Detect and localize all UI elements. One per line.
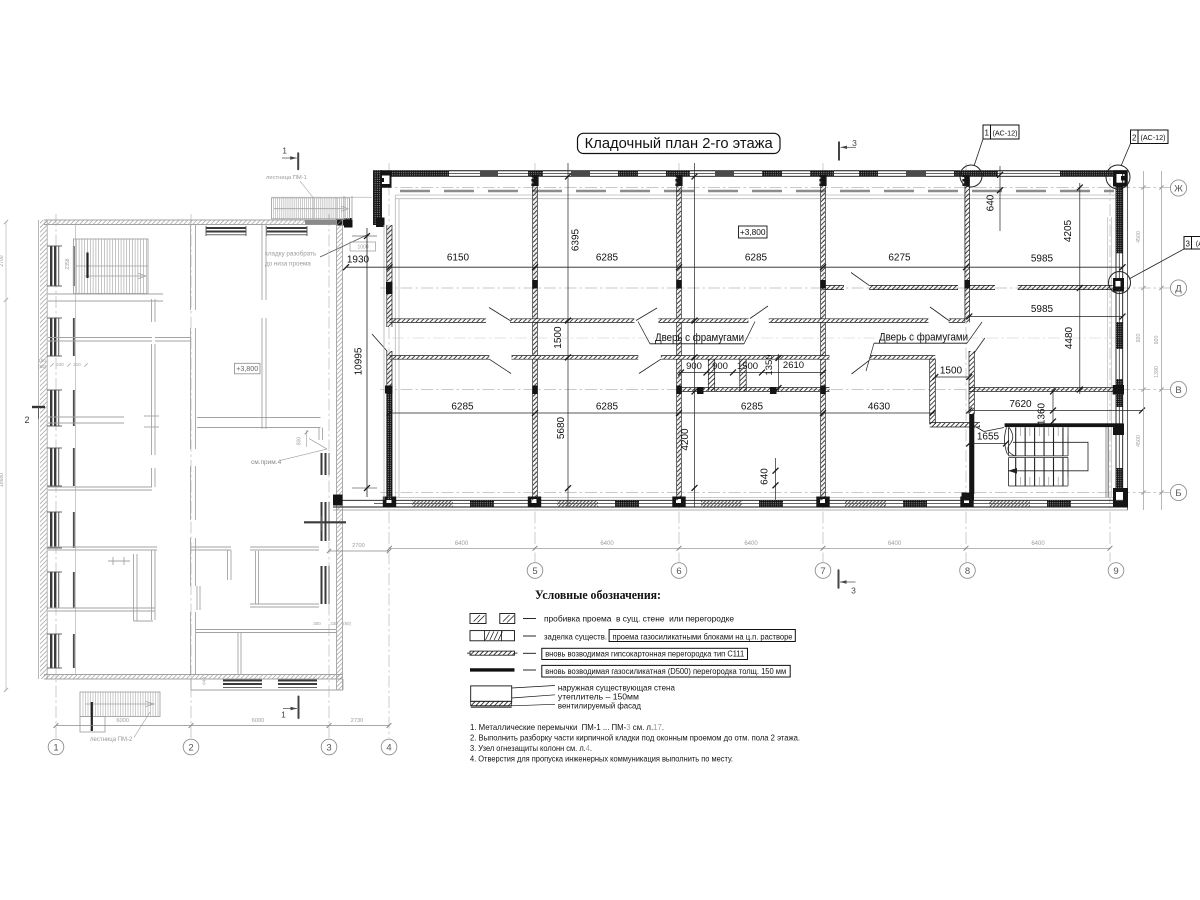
svg-text:6150: 6150 <box>447 253 470 264</box>
svg-text:вентилируемый фасад: вентилируемый фасад <box>558 701 641 711</box>
svg-text:6400: 6400 <box>744 541 758 547</box>
svg-text:6275: 6275 <box>888 253 911 264</box>
svg-text:4500: 4500 <box>1136 231 1142 243</box>
svg-text:1500: 1500 <box>553 326 564 349</box>
svg-text:6400: 6400 <box>1031 541 1045 547</box>
svg-text:(АС-12): (АС-12) <box>1140 133 1165 142</box>
svg-text:Условные обозначения:: Условные обозначения: <box>535 588 661 602</box>
svg-text:1500: 1500 <box>940 366 963 377</box>
svg-text:1500: 1500 <box>737 361 758 372</box>
svg-text:2730: 2730 <box>351 718 364 724</box>
svg-text:900: 900 <box>712 361 728 372</box>
svg-text:300: 300 <box>313 621 321 626</box>
svg-text:1: 1 <box>984 129 989 138</box>
svg-text:1360: 1360 <box>1037 402 1048 425</box>
svg-text:6: 6 <box>676 566 681 577</box>
svg-text:6400: 6400 <box>888 541 902 547</box>
svg-text:лестница ПМ-2: лестница ПМ-2 <box>90 737 133 743</box>
svg-text:(АС-12): (АС-12) <box>992 128 1017 137</box>
svg-text:лестница ПМ-1: лестница ПМ-1 <box>266 175 307 181</box>
svg-text:вновь возводимая газосиликатна: вновь возводимая газосиликатная (D500) п… <box>545 666 786 676</box>
svg-text:6285: 6285 <box>596 253 619 264</box>
svg-text:4480: 4480 <box>1064 326 1075 349</box>
svg-text:5985: 5985 <box>1031 304 1054 315</box>
svg-text:1390: 1390 <box>1154 366 1160 378</box>
svg-text:900: 900 <box>686 361 702 372</box>
svg-text:2358: 2358 <box>65 258 71 269</box>
svg-text:7: 7 <box>820 566 825 577</box>
svg-text:1. Металлические перемычки ПМ: 1. Металлические перемычки ПМ-1 ... ПМ-3… <box>470 722 664 732</box>
svg-text:330: 330 <box>330 621 338 626</box>
svg-text:4: 4 <box>386 743 391 754</box>
svg-text:3: 3 <box>851 586 856 596</box>
svg-text:3: 3 <box>852 138 857 148</box>
svg-text:4200: 4200 <box>680 428 691 451</box>
svg-text:Д: Д <box>1175 284 1182 295</box>
svg-text:920: 920 <box>1136 334 1142 343</box>
svg-text:10995: 10995 <box>354 347 365 375</box>
svg-text:(80): (80) <box>38 364 47 369</box>
svg-text:2700: 2700 <box>352 543 365 549</box>
svg-text:6400: 6400 <box>600 541 614 547</box>
svg-text:Дверь с фрамугами: Дверь с фрамугами <box>879 332 968 344</box>
svg-text:150: 150 <box>38 358 46 363</box>
svg-text:4500: 4500 <box>1136 435 1142 447</box>
svg-text:2610: 2610 <box>783 360 804 371</box>
svg-text:310: 310 <box>73 362 81 367</box>
svg-text:5: 5 <box>532 566 537 577</box>
svg-text:см.прим.4: см.прим.4 <box>251 459 282 466</box>
svg-text:1: 1 <box>281 710 286 720</box>
svg-text:2. Выполнить разборку части ки: 2. Выполнить разборку части кирпичной кл… <box>470 733 800 743</box>
svg-text:4. Отверстия для пропуска инже: 4. Отверстия для пропуска инженерных ком… <box>470 754 733 764</box>
svg-text:+3,800: +3,800 <box>236 364 258 373</box>
svg-text:8: 8 <box>965 566 970 577</box>
svg-text:1: 1 <box>53 743 58 754</box>
svg-text:3. Узел огнезащиты колонн см.: 3. Узел огнезащиты колонн см. л.4. <box>470 743 592 753</box>
svg-text:2700: 2700 <box>0 255 5 266</box>
svg-text:920: 920 <box>1154 336 1160 345</box>
svg-text:4630: 4630 <box>868 402 891 413</box>
svg-text:Ж: Ж <box>1174 184 1183 195</box>
svg-text:18680: 18680 <box>0 473 5 487</box>
svg-text:6000: 6000 <box>116 718 129 724</box>
svg-text:5680: 5680 <box>556 416 567 439</box>
svg-text:6285: 6285 <box>596 402 619 413</box>
svg-text:640: 640 <box>760 468 771 485</box>
svg-text:6285: 6285 <box>741 402 764 413</box>
svg-text:(АС-1: (АС-1 <box>1196 239 1200 248</box>
svg-text:800: 800 <box>297 437 303 446</box>
svg-text:6000: 6000 <box>252 718 265 724</box>
svg-text:+3,800: +3,800 <box>740 227 766 237</box>
svg-text:230: 230 <box>56 362 64 367</box>
svg-text:1: 1 <box>282 146 287 156</box>
svg-text:пробивка проема в сущ. стене: пробивка проема в сущ. стене или перегор… <box>544 614 734 624</box>
svg-text:640: 640 <box>985 194 996 211</box>
svg-text:6400: 6400 <box>455 541 469 547</box>
svg-text:1930: 1930 <box>347 255 370 266</box>
svg-text:6395: 6395 <box>571 228 582 251</box>
svg-text:до низа проема: до низа проема <box>265 261 311 268</box>
svg-text:3: 3 <box>326 743 331 754</box>
svg-text:5985: 5985 <box>1031 254 1054 265</box>
svg-text:3: 3 <box>1185 239 1190 248</box>
svg-text:заделка существ.: заделка существ. <box>544 631 607 641</box>
svg-text:7620: 7620 <box>1009 399 1032 410</box>
svg-text:Б: Б <box>1175 488 1181 499</box>
svg-text:6285: 6285 <box>745 253 768 264</box>
svg-text:Дверь с фрамугами: Дверь с фрамугами <box>655 332 744 344</box>
svg-text:2: 2 <box>1132 133 1137 142</box>
svg-text:В: В <box>1175 385 1181 396</box>
svg-text:640: 640 <box>202 677 207 685</box>
svg-text:1350: 1350 <box>764 354 775 375</box>
svg-text:9: 9 <box>1113 566 1118 577</box>
svg-text:кладку разобрать: кладку разобрать <box>265 250 317 258</box>
svg-text:Кладочный план 2-го этажа: Кладочный план 2-го этажа <box>585 136 774 152</box>
svg-text:проема газосиликатными блоками: проема газосиликатными блоками на ц.п. р… <box>613 631 793 641</box>
svg-text:4205: 4205 <box>1063 219 1074 242</box>
svg-text:(80): (80) <box>343 621 352 626</box>
svg-text:2: 2 <box>24 415 29 425</box>
svg-text:6285: 6285 <box>451 402 474 413</box>
svg-text:2: 2 <box>188 743 193 754</box>
svg-text:вновь возводимая гипсокартонна: вновь возводимая гипсокартонная перегоро… <box>545 649 744 659</box>
svg-text:1655: 1655 <box>977 432 1000 443</box>
